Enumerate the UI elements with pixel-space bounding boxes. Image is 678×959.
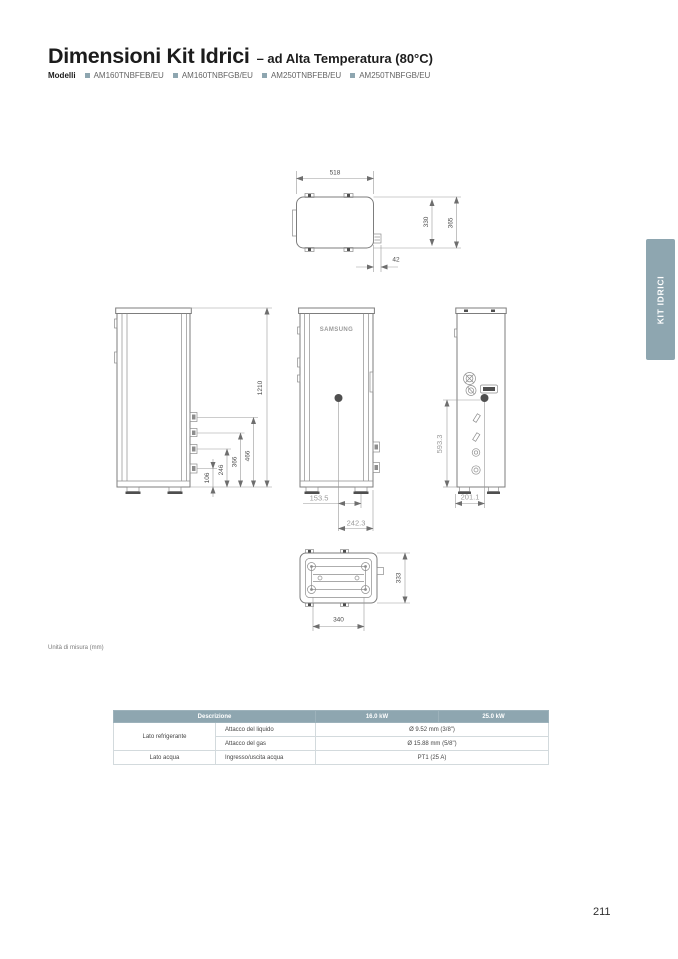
dim-side-pipe3: 366 xyxy=(232,456,239,467)
section-tab-kit-idrici: KIT IDRICI xyxy=(646,239,675,360)
technical-drawing: 518 330 365 42 xyxy=(0,0,678,959)
spec-table: Descrizione 16.0 kW 25.0 kW Lato refrige… xyxy=(113,710,549,765)
dim-top-depth-inner: 330 xyxy=(423,216,430,227)
value-cell: Ø 15.88 mm (5/8") xyxy=(316,737,549,751)
col-header-description: Descrizione xyxy=(114,711,316,723)
units-note: Unità di misura (mm) xyxy=(48,645,104,651)
dim-top-width: 518 xyxy=(330,170,341,177)
dim-bottom-footspan: 340 xyxy=(333,617,344,624)
dim-side-pipe4: 466 xyxy=(245,450,252,461)
dim-top-offset: 42 xyxy=(392,257,400,264)
pipe-outlet-point xyxy=(481,394,489,402)
col-header-16kw: 16.0 kW xyxy=(316,711,439,723)
item-cell: Attacco del gas xyxy=(216,737,316,751)
bottom-view: 333 340 xyxy=(300,550,410,632)
dim-top-depth-outer: 365 xyxy=(448,217,455,228)
document-page: Dimensioni Kit Idrici – ad Alta Temperat… xyxy=(0,0,678,959)
group-cell: Lato acqua xyxy=(114,751,216,765)
side-view-left: 1210 466 366 246 106 xyxy=(115,308,273,497)
front-view: SAMSUNG 153.5 242.3 xyxy=(298,308,380,531)
brand-logo-text: SAMSUNG xyxy=(320,327,353,333)
table-header-row: Descrizione 16.0 kW 25.0 kW xyxy=(114,711,549,723)
group-cell: Lato refrigerante xyxy=(114,723,216,751)
section-tab-label: KIT IDRICI xyxy=(656,275,666,324)
table-row: Lato acqua Ingresso/uscita acqua PT1 (25… xyxy=(114,751,549,765)
side-view-right: 593.3 201.1 xyxy=(435,308,506,508)
dim-bottom-depth: 333 xyxy=(396,572,403,583)
dim-front-offset2: 242.3 xyxy=(347,519,366,528)
water-outlet-point xyxy=(335,394,343,402)
col-header-25kw: 25.0 kW xyxy=(439,711,549,723)
dim-front-offset1: 153.5 xyxy=(310,494,329,503)
item-cell: Attacco del liquido xyxy=(216,723,316,737)
page-number: 211 xyxy=(593,906,611,918)
dim-side-pipe2: 246 xyxy=(218,464,225,475)
dim-side-height: 1210 xyxy=(257,380,264,395)
dim-side-pipe1: 106 xyxy=(204,472,211,483)
table-row: Lato refrigerante Attacco del liquido Ø … xyxy=(114,723,549,737)
value-cell: Ø 9.52 mm (3/8") xyxy=(316,723,549,737)
value-cell: PT1 (25 A) xyxy=(316,751,549,765)
top-view: 518 330 365 42 xyxy=(293,170,462,273)
dim-rear-offset: 201.1 xyxy=(461,493,480,502)
dim-rear-height: 593.3 xyxy=(435,435,444,454)
item-cell: Ingresso/uscita acqua xyxy=(216,751,316,765)
